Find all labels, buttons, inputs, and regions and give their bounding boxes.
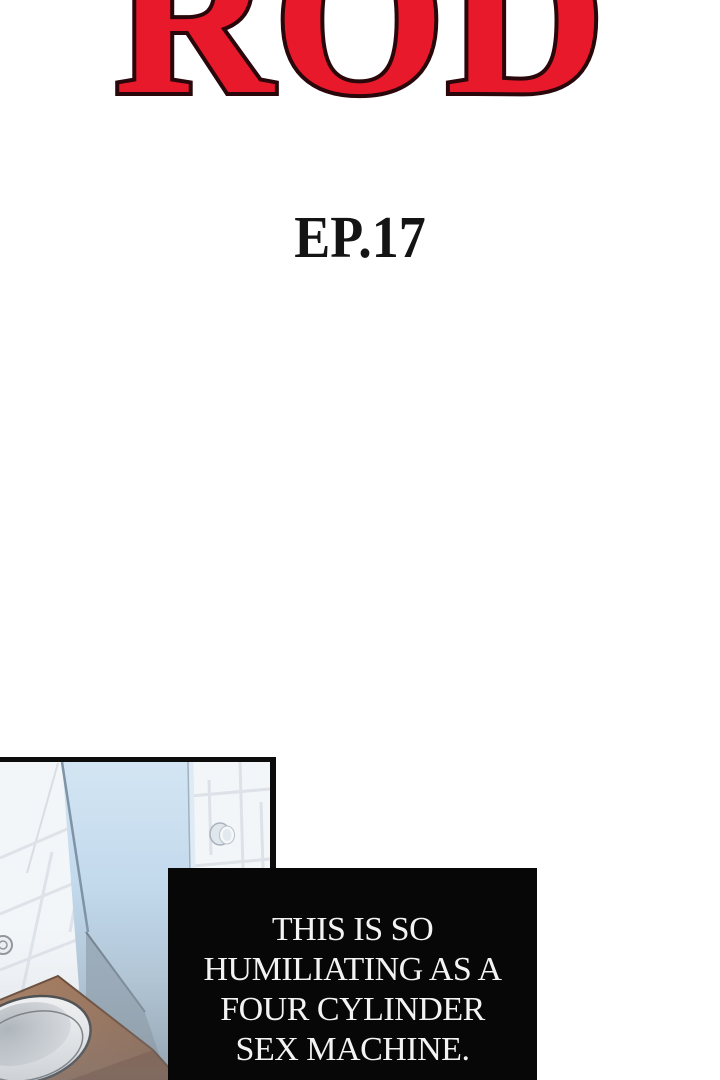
dialog-line: SEX MACHINE.: [168, 1030, 537, 1070]
comic-page: ROD ROD EP.17: [0, 0, 720, 1080]
dialog-line: THIS IS SO: [168, 910, 537, 950]
dialog-box: THIS IS SO HUMILIATING AS A FOUR CYLINDE…: [168, 868, 537, 1080]
dialog-line: HUMILIATING AS A: [168, 950, 537, 990]
dialog-line: FOUR CYLINDER: [168, 990, 537, 1030]
comic-title: ROD ROD: [0, 0, 720, 148]
dialog-text: THIS IS SO HUMILIATING AS A FOUR CYLINDE…: [168, 910, 537, 1070]
episode-label: EP.17: [0, 204, 720, 270]
comic-title-text: ROD: [0, 0, 720, 128]
